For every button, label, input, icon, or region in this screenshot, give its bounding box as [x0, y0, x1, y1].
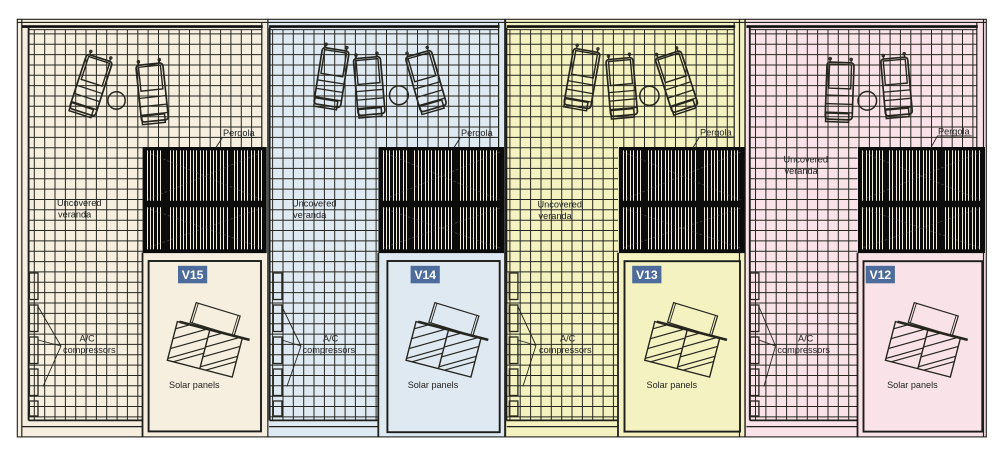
- svg-text:veranda: veranda: [539, 211, 573, 221]
- svg-text:V15: V15: [182, 268, 204, 282]
- svg-text:veranda: veranda: [58, 210, 92, 220]
- svg-text:compressors: compressors: [539, 345, 592, 355]
- svg-text:compressors: compressors: [63, 345, 116, 355]
- svg-text:Solar panels: Solar panels: [647, 380, 698, 390]
- svg-text:V12: V12: [869, 268, 891, 282]
- svg-text:Solar panels: Solar panels: [169, 380, 220, 390]
- svg-text:Uncovered: Uncovered: [57, 198, 101, 208]
- svg-text:Uncovered: Uncovered: [538, 200, 582, 210]
- svg-text:Uncovered: Uncovered: [292, 198, 336, 208]
- svg-text:Pergola: Pergola: [938, 127, 971, 137]
- svg-text:Solar panels: Solar panels: [887, 380, 938, 390]
- svg-text:veranda: veranda: [293, 210, 327, 220]
- svg-text:Pergola: Pergola: [700, 128, 733, 138]
- svg-text:Pergola: Pergola: [223, 128, 256, 138]
- svg-text:A/C: A/C: [560, 334, 576, 344]
- svg-text:compressors: compressors: [777, 345, 830, 355]
- svg-text:Solar panels: Solar panels: [408, 380, 459, 390]
- svg-text:compressors: compressors: [303, 345, 356, 355]
- svg-text:A/C: A/C: [798, 334, 814, 344]
- svg-text:Pergola: Pergola: [461, 128, 494, 138]
- svg-text:V14: V14: [414, 268, 436, 282]
- svg-text:A/C: A/C: [80, 334, 96, 344]
- svg-text:A/C: A/C: [323, 334, 339, 344]
- svg-text:V13: V13: [636, 268, 658, 282]
- svg-text:veranda: veranda: [785, 166, 819, 176]
- svg-text:Uncovered: Uncovered: [784, 155, 828, 165]
